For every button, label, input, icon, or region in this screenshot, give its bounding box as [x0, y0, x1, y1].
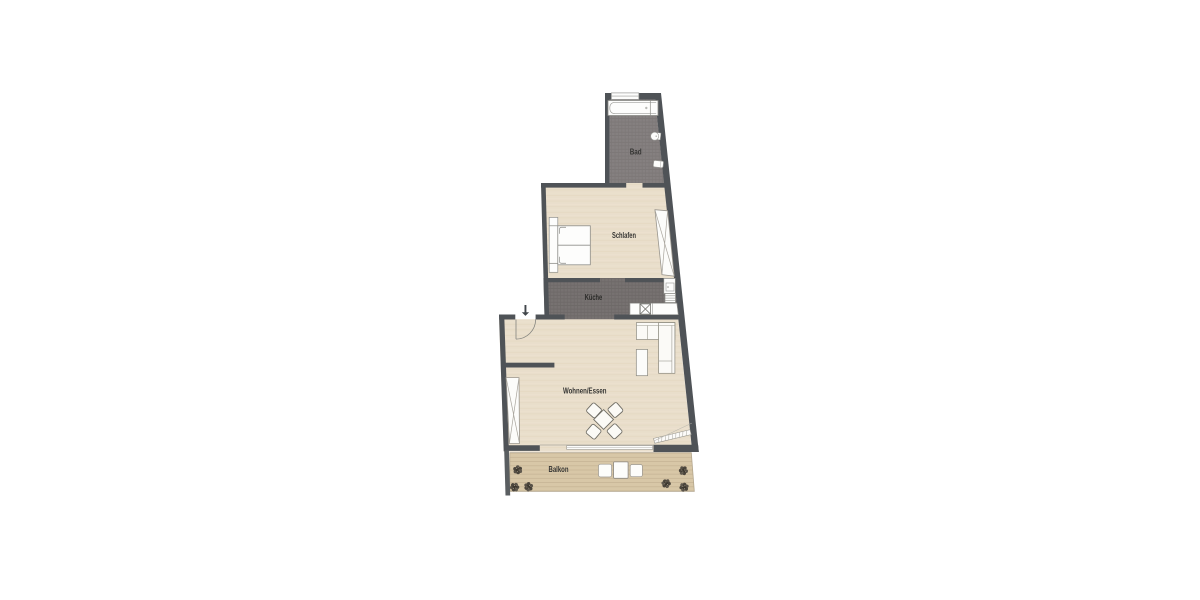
svg-text:Schlafen: Schlafen: [612, 231, 636, 240]
svg-text:Bad: Bad: [630, 147, 642, 156]
svg-text:Balkon: Balkon: [549, 465, 569, 474]
svg-text:Wohnen/Essen: Wohnen/Essen: [563, 387, 607, 396]
svg-text:Küche: Küche: [585, 293, 603, 302]
